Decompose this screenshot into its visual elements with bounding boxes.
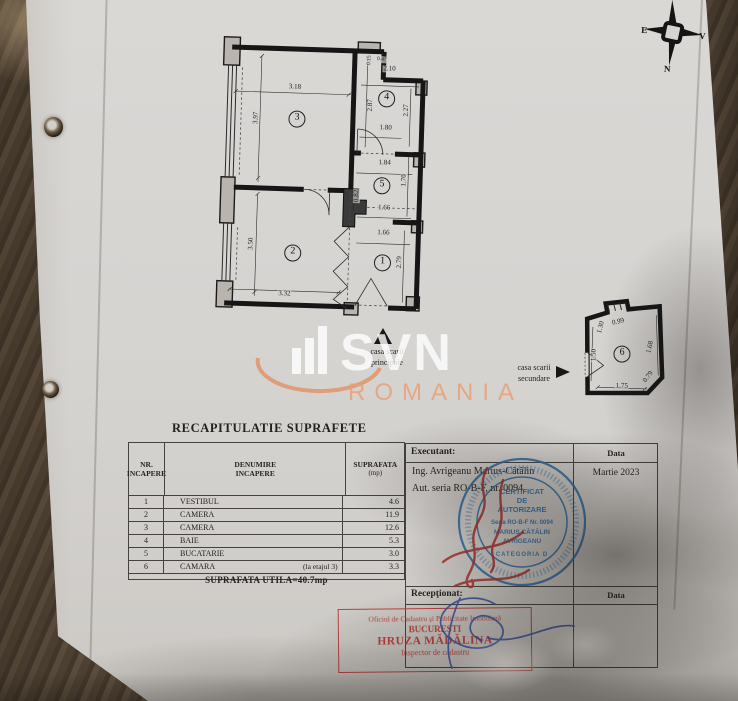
table-cell: CAMERA (164, 522, 343, 534)
table-cell: 12.6 (343, 522, 404, 534)
table-cell: 5 (129, 548, 164, 560)
dimension-label: 1.84 (377, 159, 391, 166)
table-title: RECAPITULATIE SUPRAFETE (172, 421, 367, 436)
table-row: 4BAIE5.3 (129, 535, 404, 548)
paper-fold-crease (673, 0, 703, 609)
dimension-label: 1.66 (376, 229, 390, 236)
main-stairs-arrow-icon (374, 328, 392, 344)
dimension-label: 1.66 (377, 204, 391, 211)
document-photo: 3.180.150.472.103.972.872.271.801.841.70… (0, 0, 738, 701)
table-cell: BUCATARIE (164, 548, 343, 560)
table-cell: BAIE (164, 535, 343, 547)
paper-fold-crease (88, 0, 107, 701)
dimension-label: 1.50 (590, 348, 597, 362)
table-cell: 3.3 (343, 561, 404, 573)
secondary-floor-plan: 1.300.991.501.681.750.796 (568, 296, 672, 409)
surface-table-header: NR. INCAPERE DENUMIRE INCAPERE SUPRAFATA… (129, 443, 404, 496)
hole-punch (42, 381, 59, 398)
dimension-label: 3.18 (288, 83, 302, 90)
table-cell: 11.9 (343, 509, 404, 521)
dimension-label: 2.27 (403, 103, 410, 117)
table-cell: 4.6 (343, 496, 404, 508)
dimension-label: 2.10 (382, 65, 396, 72)
compass-letter-east: V (699, 31, 706, 41)
dimension-label: 3.97 (252, 111, 259, 125)
table-cell: VESTIBUL (164, 496, 343, 508)
blue-signature (400, 590, 580, 672)
surface-table: NR. INCAPERE DENUMIRE INCAPERE SUPRAFATA… (128, 442, 405, 580)
dimension-label: 1.75 (615, 382, 629, 389)
dimension-label: 2.87 (367, 98, 374, 112)
table-cell: 3.0 (343, 548, 404, 560)
dimension-label: 0.47 (376, 56, 388, 63)
column-header-nr: NR. INCAPERE (129, 443, 165, 495)
column-header-denumire: DENUMIRE INCAPERE (165, 443, 346, 495)
compass-letter-north: N (664, 64, 671, 74)
main-floor-plan: 3.180.150.472.103.972.872.271.801.841.70… (203, 32, 436, 339)
compass-icon: E V N (639, 0, 712, 77)
table-cell: CAMARA(la etajul 3) (164, 561, 343, 573)
dimension-label: 2.79 (396, 255, 403, 269)
table-cell: CAMERA (164, 509, 343, 521)
table-cell: 5.3 (343, 535, 404, 547)
executant-label: Executant: (411, 447, 455, 457)
dimension-label: 3.50 (247, 236, 254, 250)
dimension-label: 3.32 (277, 290, 291, 297)
table-row: 1VESTIBUL4.6 (129, 496, 404, 509)
table-row: 3CAMERA12.6 (129, 522, 404, 535)
caption-line: casa scarii (352, 346, 422, 357)
dimension-label: 0.82 (353, 189, 360, 203)
column-header-suprafata: SUPRAFATA (mp) (346, 443, 404, 495)
table-cell: 3 (129, 522, 164, 534)
table-row: 2CAMERA11.9 (129, 509, 404, 522)
table-row: 6CAMARA(la etajul 3)3.3 (129, 561, 404, 574)
hole-punch (44, 117, 63, 137)
surface-table-footer: SUPRAFATA UTILA=40.7mp (129, 574, 404, 586)
dimension-label: 1.80 (378, 124, 392, 131)
table-cell: 1 (129, 496, 164, 508)
table-cell: 6 (129, 561, 164, 573)
main-stairs-caption: casa scarii principale (352, 346, 422, 368)
surface-table-body: 1VESTIBUL4.62CAMERA11.93CAMERA12.64BAIE5… (129, 496, 404, 574)
dimension-label: 0.15 (366, 54, 373, 66)
table-row: 5BUCATARIE3.0 (129, 548, 404, 561)
secondary-stairs-arrow-icon (556, 366, 570, 378)
red-signature (425, 462, 540, 600)
table-cell: 4 (129, 535, 164, 547)
table-cell: 2 (129, 509, 164, 521)
compass-letter-west: E (641, 25, 647, 35)
dimension-label: 1.70 (400, 173, 407, 187)
caption-line: principale (352, 357, 422, 368)
